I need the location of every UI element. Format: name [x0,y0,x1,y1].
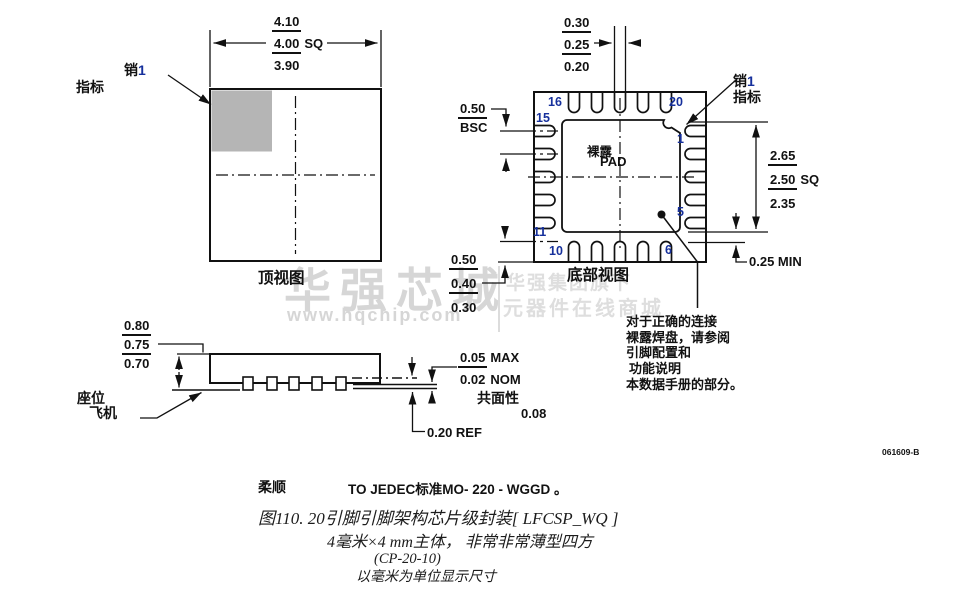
figure-caption-line1: 图110. 20引脚引脚架构芯片级封装[ LFCSP_WQ ] [258,504,618,529]
pin-number-1: 1 [677,132,684,146]
coplanarity-label: 共面性 [477,388,519,408]
top-pin1-label-line1: 销1 [124,60,146,80]
pin-number-15: 15 [536,111,550,125]
lead-thickness-dim: 0.05MAX 0.02NOM [458,350,521,392]
seating-plane-label-line2: 飞机 [89,403,117,423]
pin-number-10: 10 [549,244,563,258]
top-view-title: 顶视图 [258,266,305,288]
exposed-pad-label-en: PAD [600,154,626,169]
figure-caption-line2: 4毫米×4 mm主体， 非常非常薄型四方 [327,528,593,552]
lead-length-dim: 0.50 0.40 0.30 [449,252,478,322]
compliance-text: TO JEDEC标准MO- 220 - WGGD 。 [348,478,568,498]
document-number: 061609-B [882,447,919,457]
pin-number-16: 16 [548,95,562,109]
exposed-pad-note: 对于正确的连接 裸露焊盘，请参阅 引脚配置和 功能说明 本数据手册的部分。 [626,314,743,393]
pin-number-11: 11 [533,225,546,239]
bottom-pin1-label-line2: 指标 [733,87,761,107]
pin-number-5: 5 [677,205,684,219]
pin-number-20: 20 [669,95,683,109]
package-outline-drawing: 华强芯城 www.hqchip.com 华强集团旗下 元器件在线商城 [0,0,960,592]
pad-size-dim: 2.65 2.50SQ 2.35 [768,148,819,218]
lead-ref-dim: 0.20 REF [427,425,482,440]
figure-caption-line4: 以毫米为单位显示尺寸 [356,566,496,586]
top-pin1-label-line2: 指标 [76,77,104,97]
coplanarity-value: 0.08 [521,406,546,421]
lead-width-dim: 0.30 0.25 0.20 [562,15,591,79]
bottom-view-title: 底部视图 [567,263,629,285]
pad-clearance-dim: 0.25 MIN [749,254,802,269]
top-view-size-dim: 4.10 4.00SQ 3.90 [272,14,323,78]
body-height-dim: 0.80 0.75 0.70 [122,318,151,373]
pin-number-6: 6 [665,243,672,257]
compliance-label: 柔顺 [258,477,286,497]
side-view [140,344,457,432]
pin1-index-area [212,91,273,152]
lead-pitch-dim: 0.50 BSC [458,101,489,137]
